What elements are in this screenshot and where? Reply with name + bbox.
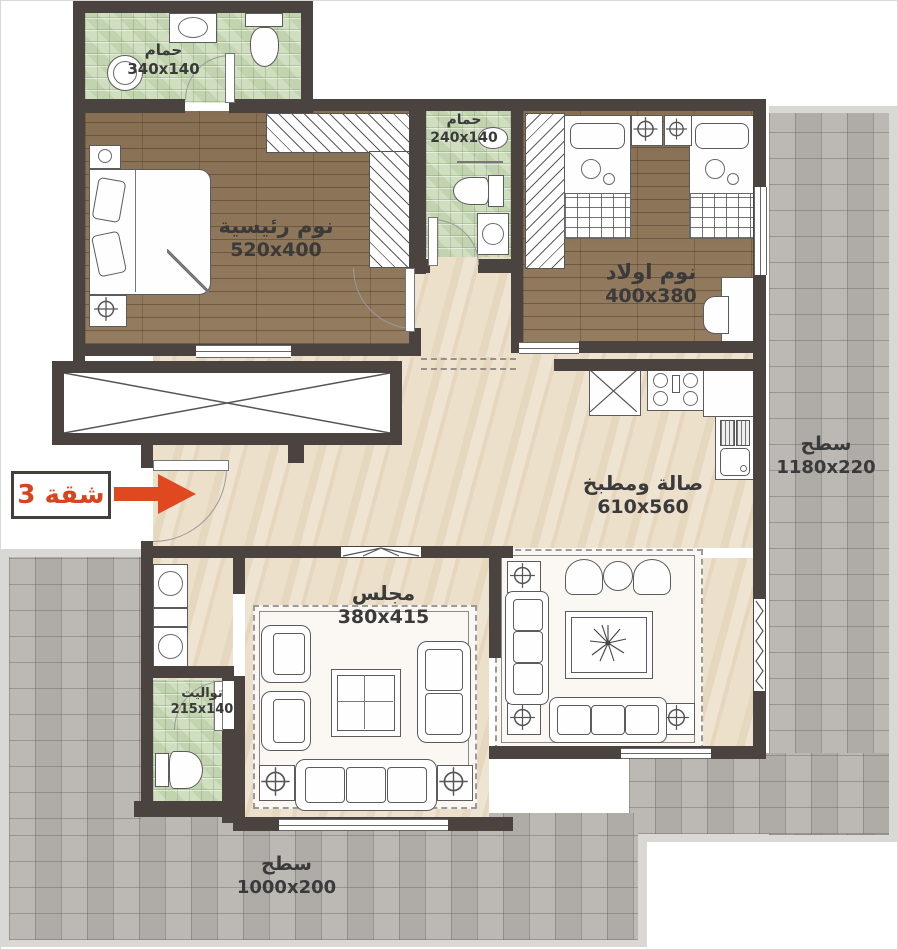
room-label-majlis: مجلس 380x415	[321, 581, 446, 630]
toilet-bowl	[169, 751, 203, 789]
bathroom-top-door-leaf	[225, 53, 235, 103]
room-label-terrace-right: سطح 1180x220	[771, 433, 881, 479]
window	[621, 748, 711, 759]
pillow	[570, 123, 625, 149]
burner	[653, 391, 668, 406]
armchair-seat	[273, 699, 305, 743]
round-table	[603, 561, 633, 591]
wall	[141, 666, 234, 678]
washbasin-bowl	[482, 223, 504, 245]
wall	[141, 546, 513, 558]
room-dims: 610x560	[563, 496, 723, 520]
room-label-toilet: تواليت 215x140	[161, 686, 243, 719]
threshold-dashed-line	[421, 358, 516, 360]
nightstand	[631, 115, 663, 146]
plant-icon	[586, 621, 630, 665]
terrace-left-floor	[9, 557, 141, 819]
room-label-kids-bedroom: نوم اولاد 400x380	[586, 259, 716, 309]
corner-table	[507, 703, 541, 735]
window	[196, 345, 291, 358]
toilet-tank	[245, 13, 283, 27]
wall	[478, 259, 523, 273]
burner	[683, 373, 698, 388]
bed-decor	[581, 159, 601, 179]
shaft-x-icon	[64, 373, 390, 433]
terrace-edge	[889, 106, 897, 842]
terrace-edge	[1, 549, 9, 947]
basin	[158, 634, 183, 659]
sofa-cushion	[425, 649, 463, 691]
wall	[301, 1, 313, 111]
entrance-arrow-icon	[114, 468, 198, 520]
window	[279, 819, 448, 831]
terrace-edge	[769, 106, 889, 113]
wall	[73, 1, 85, 363]
window-zigzag	[754, 599, 765, 691]
room-name: سطح	[771, 433, 881, 457]
wall	[301, 99, 766, 111]
burner	[683, 391, 698, 406]
bed-blanket	[564, 193, 631, 239]
master-wardrobe	[369, 151, 411, 268]
room-name: مجلس	[321, 581, 446, 606]
center-table-inner	[337, 675, 395, 731]
corner-table	[507, 561, 541, 593]
bathroom-middle-door-leaf	[428, 217, 438, 266]
wall	[579, 341, 766, 353]
room-name: نوم اولاد	[586, 259, 716, 285]
burner	[653, 373, 668, 388]
corner-table	[437, 765, 473, 801]
room-name: تواليت	[161, 686, 243, 702]
armchair	[565, 559, 603, 595]
toilet-bowl	[453, 177, 489, 205]
room-name: سطح	[214, 853, 359, 877]
basin	[158, 571, 183, 596]
wall	[409, 328, 421, 356]
apartment-tag-label: شقة 3	[17, 480, 104, 510]
room-dims: 400x380	[586, 285, 716, 309]
vanity-basin	[178, 17, 208, 38]
towel-bar	[457, 161, 503, 163]
sink-drain-hole	[740, 465, 747, 472]
room-label-master-bedroom: نوم رئيسية 520x400	[196, 213, 356, 263]
nightstand	[89, 295, 127, 327]
bed-headboard-line	[135, 170, 136, 292]
room-name: صالة ومطبخ	[563, 471, 723, 496]
toilet-bowl	[250, 27, 279, 67]
room-label-bathroom-top: حمام 340x140	[106, 41, 221, 79]
bed-decor	[727, 173, 739, 185]
corner-table	[259, 765, 295, 801]
wall	[134, 801, 245, 817]
room-dims: 520x400	[196, 239, 356, 263]
wall	[511, 99, 523, 353]
bed-decor	[603, 173, 615, 185]
master-door-leaf	[405, 268, 415, 332]
sofa-cushion	[513, 631, 543, 663]
room-label-hall-kitchen: صالة ومطبخ 610x560	[563, 471, 723, 520]
wall	[79, 1, 313, 13]
bed-decor	[705, 159, 725, 179]
room-name: نوم رئيسية	[196, 213, 356, 239]
toilet-tank	[155, 753, 169, 787]
wall	[141, 558, 153, 811]
room-dims: 380x415	[321, 606, 446, 630]
apartment-tag: شقة 3	[11, 471, 111, 519]
master-wardrobe	[266, 113, 411, 153]
wall	[409, 111, 421, 269]
nightstand	[664, 115, 692, 146]
sofa-cushion	[513, 599, 543, 631]
sofa-cushion	[591, 705, 625, 735]
lamp	[98, 149, 112, 163]
sink-drainer	[736, 420, 750, 446]
bed-blanket	[689, 193, 755, 239]
room-name: حمام	[106, 41, 221, 60]
sofa-cushion	[387, 767, 427, 803]
sofa-cushion	[625, 705, 659, 735]
sliding-door	[519, 342, 579, 354]
room-dims: 1000x200	[214, 877, 359, 900]
table-divider	[364, 675, 365, 729]
room-label-bathroom-middle: حمام 240x140	[421, 112, 507, 147]
room-dims: 240x140	[421, 130, 507, 148]
threshold-dashed-line	[421, 368, 516, 370]
room-dims: 1180x220	[771, 457, 881, 480]
sink-basin	[720, 448, 750, 476]
sofa-cushion	[305, 767, 345, 803]
stove-panel	[672, 375, 680, 393]
sofa-cushion	[513, 663, 543, 695]
window-double-casement	[341, 547, 421, 557]
sink-drainer	[720, 420, 735, 446]
wall	[233, 546, 245, 594]
floor-plan: حمام 340x140 نوم رئيسية 520x400 حمام 240…	[0, 0, 898, 950]
toilet-tank	[488, 175, 504, 207]
terrace-wrap-floor	[629, 753, 889, 834]
room-dims: 340x140	[106, 60, 221, 79]
terrace-edge	[1, 939, 646, 947]
basin-shelf	[153, 608, 188, 627]
wall	[489, 546, 501, 658]
table-divider	[337, 701, 393, 702]
wall	[85, 99, 185, 113]
room-name: حمام	[421, 112, 507, 130]
room-label-terrace-bottom: سطح 1000x200	[214, 853, 359, 899]
sofa-cushion	[557, 705, 591, 735]
sofa-cushion	[425, 693, 463, 735]
window	[754, 187, 767, 275]
sofa-cushion	[346, 767, 386, 803]
wall	[554, 359, 766, 371]
terrace-edge	[638, 833, 647, 947]
armchair-seat	[273, 633, 305, 675]
pillow	[695, 123, 749, 149]
terrace-edge	[1, 549, 141, 557]
room-dims: 215x140	[161, 702, 243, 718]
kitchen-counter	[703, 369, 755, 417]
kids-wardrobe	[525, 113, 565, 269]
armchair	[633, 559, 671, 595]
fridge	[589, 369, 641, 416]
shaft-box	[52, 361, 402, 445]
wall	[288, 443, 304, 463]
